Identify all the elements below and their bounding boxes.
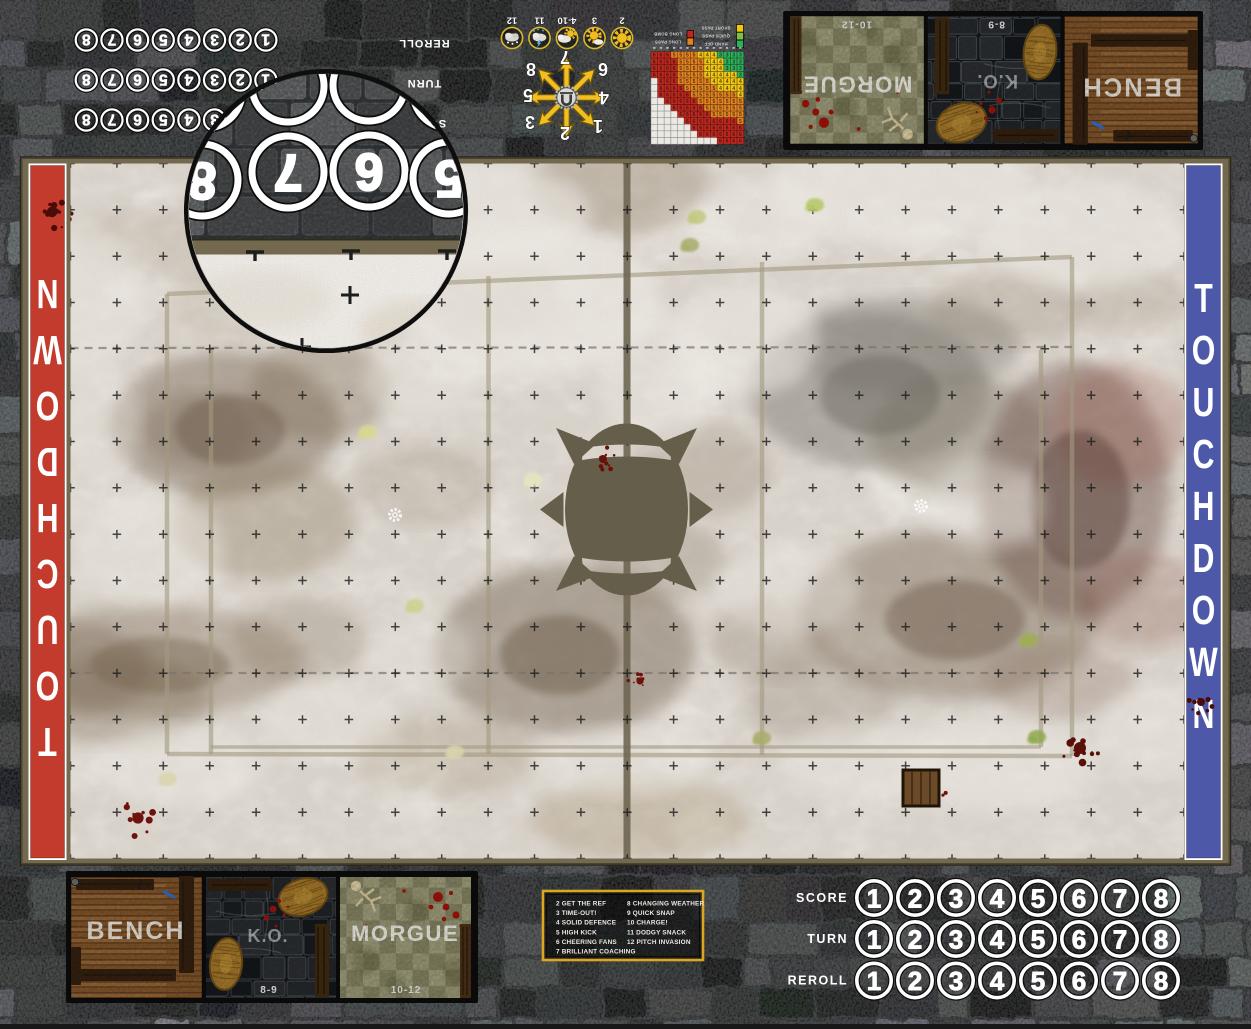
svg-text:9 QUICK SNAP: 9 QUICK SNAP [627,910,675,917]
svg-text:D: D [37,439,59,486]
svg-text:4: 4 [719,66,722,72]
svg-text:4: 4 [184,30,193,47]
svg-text:5: 5 [726,112,729,118]
svg-text:5: 5 [679,73,682,79]
svg-text:3: 3 [525,112,535,132]
svg-text:6: 6 [673,79,676,85]
svg-text:8: 8 [1154,883,1168,913]
svg-text:5: 5 [693,79,696,85]
svg-text:6: 6 [679,106,682,112]
svg-text:4: 4 [184,70,193,87]
svg-text:3: 3 [726,53,729,59]
svg-text:6: 6 [713,132,716,138]
svg-text:SCORE: SCORE [796,891,848,905]
svg-text:11: 11 [534,14,545,25]
svg-text:10 CHARGE!: 10 CHARGE! [627,920,668,927]
svg-text:SHORT PASS: SHORT PASS [702,26,731,31]
svg-text:6: 6 [699,119,702,125]
svg-text:5: 5 [706,79,709,85]
svg-text:D: D [1193,534,1215,581]
svg-text:5: 5 [1031,966,1045,996]
svg-text:6: 6 [679,112,682,118]
svg-text:2: 2 [236,30,245,47]
svg-text:6: 6 [660,59,663,65]
svg-text:7: 7 [274,143,303,201]
svg-text:5: 5 [693,92,696,98]
svg-text:3: 3 [592,14,597,25]
svg-text:2: 2 [908,883,922,913]
svg-text:6: 6 [660,86,663,92]
svg-text:5: 5 [693,53,696,59]
svg-text:5: 5 [732,112,735,118]
svg-text:8 CHANGING WEATHER: 8 CHANGING WEATHER [627,901,705,908]
svg-text:6: 6 [739,126,742,132]
svg-text:6: 6 [732,139,735,145]
svg-text:5: 5 [726,106,729,112]
svg-text:6: 6 [706,119,709,125]
svg-text:6: 6 [673,86,676,92]
svg-text:H: H [37,495,59,542]
svg-text:4: 4 [990,883,1005,913]
svg-text:5: 5 [673,53,676,59]
svg-text:6: 6 [699,106,702,112]
svg-text:5: 5 [686,86,689,92]
svg-text:3 TIME-OUT!: 3 TIME-OUT! [556,910,597,917]
svg-text:6: 6 [706,126,709,132]
svg-text:2: 2 [908,924,922,954]
svg-text:O: O [36,663,60,710]
svg-text:1: 1 [867,883,881,913]
svg-text:5: 5 [739,99,742,105]
svg-text:6: 6 [666,92,669,98]
svg-text:6: 6 [673,92,676,98]
svg-text:5: 5 [713,86,716,92]
svg-text:2 GET THE REF: 2 GET THE REF [556,901,606,908]
svg-text:2: 2 [908,966,922,996]
svg-text:HAND OFF: HAND OFF [704,42,727,47]
svg-text:3: 3 [732,53,735,59]
svg-text:C: C [1193,430,1215,477]
svg-text:T: T [38,719,57,766]
svg-text:6: 6 [666,86,669,92]
svg-text:4: 4 [732,86,735,92]
svg-text:7: 7 [560,47,570,67]
svg-text:5: 5 [699,66,702,72]
svg-text:4: 4 [990,966,1005,996]
svg-text:4: 4 [713,79,716,85]
svg-text:3: 3 [726,66,729,72]
svg-text:3: 3 [739,53,742,59]
svg-text:TURN: TURN [807,932,848,946]
svg-text:5: 5 [713,106,716,112]
svg-text:5: 5 [679,59,682,65]
svg-text:8: 8 [526,59,536,79]
svg-text:6: 6 [719,119,722,125]
svg-text:6: 6 [739,139,742,145]
svg-text:1: 1 [867,966,881,996]
svg-text:6: 6 [679,99,682,105]
svg-text:6: 6 [666,59,669,65]
svg-text:6: 6 [726,132,729,138]
svg-text:REROLL: REROLL [398,37,449,49]
svg-text:6: 6 [699,132,702,138]
svg-text:5: 5 [693,66,696,72]
svg-text:7: 7 [108,30,117,47]
svg-text:3: 3 [210,30,219,47]
svg-text:5: 5 [693,86,696,92]
svg-text:5: 5 [719,112,722,118]
svg-text:5: 5 [713,92,716,98]
svg-text:3: 3 [949,966,963,996]
svg-text:6: 6 [686,92,689,98]
svg-text:6: 6 [666,73,669,79]
svg-text:5: 5 [1031,924,1045,954]
svg-text:5 HIGH KICK: 5 HIGH KICK [556,929,597,936]
svg-text:4: 4 [726,86,729,92]
svg-text:5: 5 [693,73,696,79]
svg-text:4: 4 [726,79,729,85]
svg-text:7 BRILLIANT COACHING: 7 BRILLIANT COACHING [556,949,636,956]
svg-text:H: H [1193,482,1215,529]
svg-text:6: 6 [732,119,735,125]
svg-text:5: 5 [1031,883,1045,913]
svg-text:8: 8 [1154,924,1168,954]
svg-text:5: 5 [732,99,735,105]
svg-text:5: 5 [739,112,742,118]
svg-text:11 DODGY SNACK: 11 DODGY SNACK [627,929,686,936]
svg-text:5: 5 [713,99,716,105]
svg-text:2: 2 [560,123,570,143]
svg-text:5: 5 [739,106,742,112]
svg-text:W: W [1189,638,1218,685]
svg-text:6: 6 [673,66,676,72]
svg-text:4: 4 [599,88,609,108]
svg-text:6: 6 [719,126,722,132]
svg-text:LONG BOMB: LONG BOMB [654,32,682,37]
svg-text:5: 5 [732,92,735,98]
svg-text:6: 6 [693,119,696,125]
svg-text:6: 6 [699,112,702,118]
svg-text:5: 5 [726,99,729,105]
svg-text:3: 3 [732,66,735,72]
svg-text:3: 3 [210,70,219,87]
svg-text:4: 4 [713,66,716,72]
svg-text:5: 5 [706,99,709,105]
svg-text:C: C [37,551,59,598]
svg-text:6: 6 [673,106,676,112]
svg-text:6: 6 [666,66,669,72]
svg-text:6: 6 [686,106,689,112]
svg-text:5: 5 [706,106,709,112]
svg-text:4: 4 [706,59,709,65]
svg-text:4: 4 [719,79,722,85]
svg-text:5: 5 [699,59,702,65]
svg-text:N: N [37,271,59,318]
svg-text:6: 6 [666,79,669,85]
svg-text:4: 4 [713,73,716,79]
svg-text:REROLL: REROLL [788,974,848,988]
svg-text:4: 4 [739,86,742,92]
svg-text:6: 6 [679,92,682,98]
svg-text:1: 1 [593,116,603,136]
svg-text:5: 5 [699,79,702,85]
svg-text:O: O [36,383,60,430]
svg-text:4: 4 [719,73,722,79]
svg-text:5: 5 [739,119,742,125]
svg-text:4: 4 [739,92,742,98]
svg-text:5: 5 [686,79,689,85]
svg-text:6: 6 [653,59,656,65]
svg-text:3: 3 [949,924,963,954]
svg-text:5: 5 [686,59,689,65]
svg-text:6: 6 [673,59,676,65]
svg-text:TURN: TURN [407,77,442,89]
svg-text:U: U [37,607,59,654]
svg-text:3: 3 [949,883,963,913]
svg-text:12: 12 [507,14,518,25]
svg-text:6: 6 [666,53,669,59]
svg-text:4-10: 4-10 [557,14,576,25]
svg-text:6: 6 [726,139,729,145]
svg-text:6: 6 [686,119,689,125]
svg-text:5: 5 [523,85,533,105]
svg-text:6: 6 [1072,883,1086,913]
svg-text:6: 6 [693,99,696,105]
svg-text:1: 1 [261,30,270,47]
svg-text:6: 6 [693,106,696,112]
svg-text:4: 4 [719,59,722,65]
svg-text:4: 4 [719,86,722,92]
svg-text:5: 5 [699,73,702,79]
svg-text:4: 4 [732,79,735,85]
svg-text:5: 5 [679,53,682,59]
svg-text:6: 6 [673,99,676,105]
svg-text:6: 6 [653,66,656,72]
svg-text:12 PITCH INVASION: 12 PITCH INVASION [627,939,691,946]
svg-text:6: 6 [660,79,663,85]
svg-text:5: 5 [679,66,682,72]
svg-text:6: 6 [706,132,709,138]
svg-text:7: 7 [1113,966,1127,996]
svg-text:6: 6 [706,112,709,118]
svg-text:3: 3 [732,59,735,65]
svg-text:6: 6 [355,142,384,200]
svg-text:LONG PASS: LONG PASS [655,40,681,45]
svg-text:6: 6 [660,66,663,72]
svg-text:5: 5 [706,92,709,98]
svg-text:8: 8 [82,70,91,87]
svg-text:5: 5 [706,86,709,92]
svg-text:4: 4 [706,53,709,59]
svg-text:4: 4 [726,73,729,79]
svg-text:N: N [1193,690,1215,737]
svg-text:6: 6 [133,30,142,47]
svg-text:5: 5 [726,92,729,98]
svg-text:4: 4 [706,73,709,79]
svg-text:7: 7 [1113,924,1127,954]
svg-text:6: 6 [660,73,663,79]
svg-text:5: 5 [159,110,168,127]
svg-text:6: 6 [1072,966,1086,996]
svg-text:QUICK PASS: QUICK PASS [702,34,730,39]
svg-text:6: 6 [673,73,676,79]
svg-text:1: 1 [867,924,881,954]
svg-text:6: 6 [133,110,142,127]
svg-text:5: 5 [686,73,689,79]
svg-text:6: 6 [732,132,735,138]
svg-text:4: 4 [739,79,742,85]
svg-text:5: 5 [713,112,716,118]
svg-text:3: 3 [739,66,742,72]
svg-text:5: 5 [686,66,689,72]
svg-text:5: 5 [719,106,722,112]
svg-text:6: 6 [693,112,696,118]
svg-text:6: 6 [719,139,722,145]
svg-text:5: 5 [732,106,735,112]
svg-text:O: O [1192,586,1216,633]
svg-text:6: 6 [653,53,656,59]
svg-text:6: 6 [713,119,716,125]
svg-text:6: 6 [686,112,689,118]
svg-text:4: 4 [732,73,735,79]
svg-text:5: 5 [159,70,168,87]
svg-text:6: 6 [693,126,696,132]
svg-text:6: 6 [719,132,722,138]
svg-text:6: 6 [713,126,716,132]
svg-text:8: 8 [1154,966,1168,996]
svg-text:4: 4 [713,53,716,59]
svg-text:6: 6 [133,70,142,87]
svg-text:T: T [1194,274,1213,321]
svg-text:7: 7 [108,70,117,87]
svg-text:5: 5 [686,53,689,59]
svg-text:6: 6 [1072,924,1086,954]
svg-text:8: 8 [82,30,91,47]
svg-text:6: 6 [726,126,729,132]
svg-text:4: 4 [990,924,1005,954]
svg-text:4: 4 [713,59,716,65]
svg-text:5: 5 [699,92,702,98]
svg-text:6: 6 [679,86,682,92]
svg-text:6: 6 [666,99,669,105]
svg-text:6: 6 [726,119,729,125]
svg-text:6: 6 [660,92,663,98]
svg-text:W: W [33,327,62,374]
svg-text:5: 5 [719,99,722,105]
svg-text:3: 3 [726,59,729,65]
svg-text:7: 7 [1113,883,1127,913]
svg-text:5: 5 [699,99,702,105]
svg-text:6: 6 [653,73,656,79]
svg-text:4 SOLID DEFENCE: 4 SOLID DEFENCE [556,920,617,927]
svg-text:5: 5 [699,86,702,92]
svg-text:4: 4 [706,66,709,72]
svg-text:5: 5 [159,30,168,47]
svg-text:3: 3 [739,59,742,65]
svg-text:U: U [1193,378,1215,425]
svg-text:O: O [1192,326,1216,373]
svg-text:6: 6 [699,126,702,132]
svg-text:3: 3 [719,53,722,59]
svg-text:4: 4 [184,110,193,127]
svg-text:5: 5 [679,79,682,85]
svg-text:7: 7 [108,110,117,127]
svg-text:4: 4 [699,53,702,59]
svg-text:6: 6 [598,59,608,79]
svg-text:8: 8 [82,110,91,127]
svg-text:3: 3 [739,73,742,79]
svg-text:5: 5 [719,92,722,98]
svg-text:6: 6 [660,53,663,59]
svg-text:2: 2 [619,14,624,25]
svg-text:6 CHEERING FANS: 6 CHEERING FANS [556,939,617,946]
svg-text:6: 6 [686,99,689,105]
svg-text:6: 6 [739,132,742,138]
svg-text:2: 2 [236,70,245,87]
svg-text:5: 5 [693,59,696,65]
svg-text:6: 6 [732,126,735,132]
